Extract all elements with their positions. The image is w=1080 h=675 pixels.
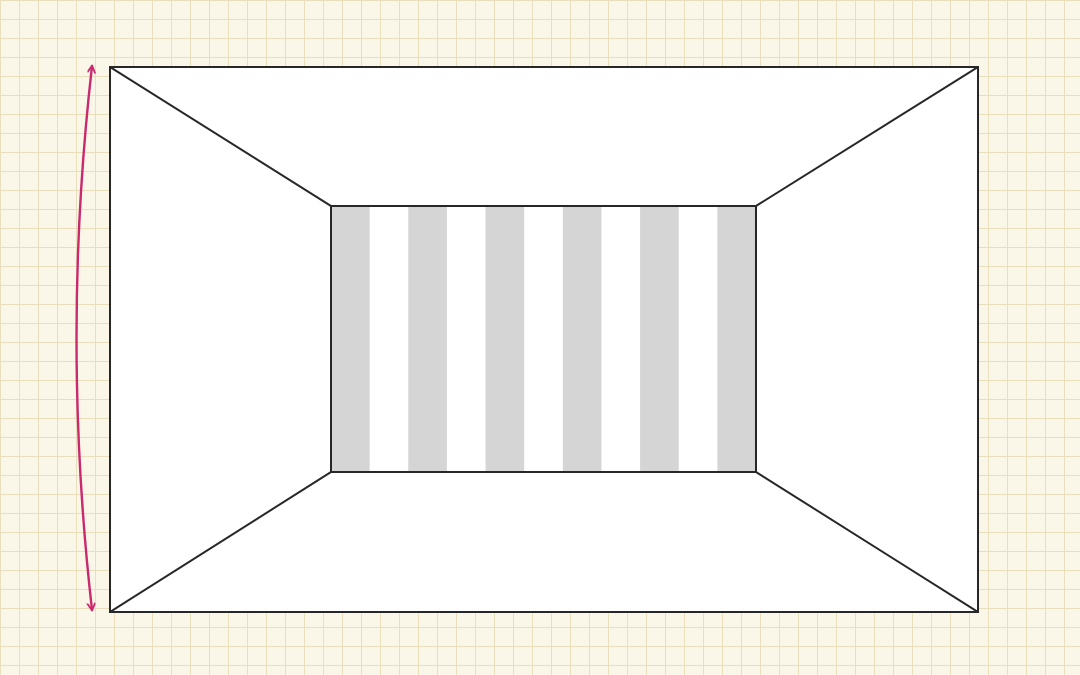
illusion-diagram	[0, 0, 1080, 675]
striped-back-wall	[331, 206, 757, 472]
wall-stripe-gray	[563, 206, 602, 472]
graph-paper-canvas	[0, 0, 1080, 675]
wall-stripe-gray	[640, 206, 679, 472]
wall-stripe-gray	[486, 206, 525, 472]
wall-stripe-gray	[717, 206, 756, 472]
wall-stripe-gray	[408, 206, 447, 472]
wall-stripe-white	[524, 206, 563, 472]
wall-stripe-white	[601, 206, 640, 472]
wall-stripe-white	[447, 206, 486, 472]
wall-stripe-white	[679, 206, 718, 472]
curved-double-arrow	[77, 66, 93, 610]
wall-stripe-gray	[331, 206, 370, 472]
wall-stripe-white	[370, 206, 409, 472]
